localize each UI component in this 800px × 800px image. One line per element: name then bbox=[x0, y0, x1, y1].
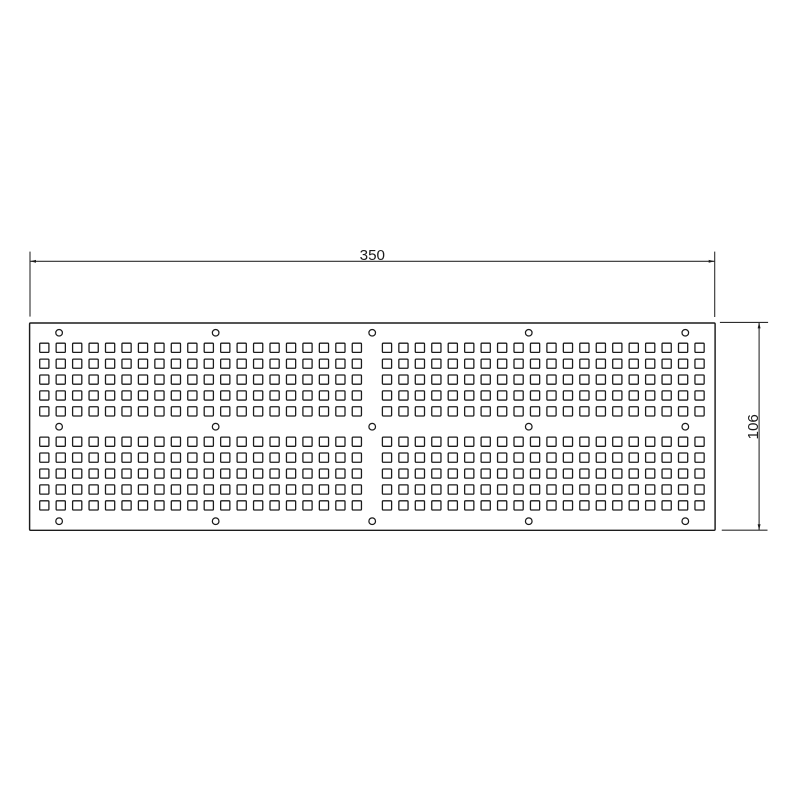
svg-text:106: 106 bbox=[745, 414, 762, 439]
svg-text:350: 350 bbox=[360, 247, 385, 264]
